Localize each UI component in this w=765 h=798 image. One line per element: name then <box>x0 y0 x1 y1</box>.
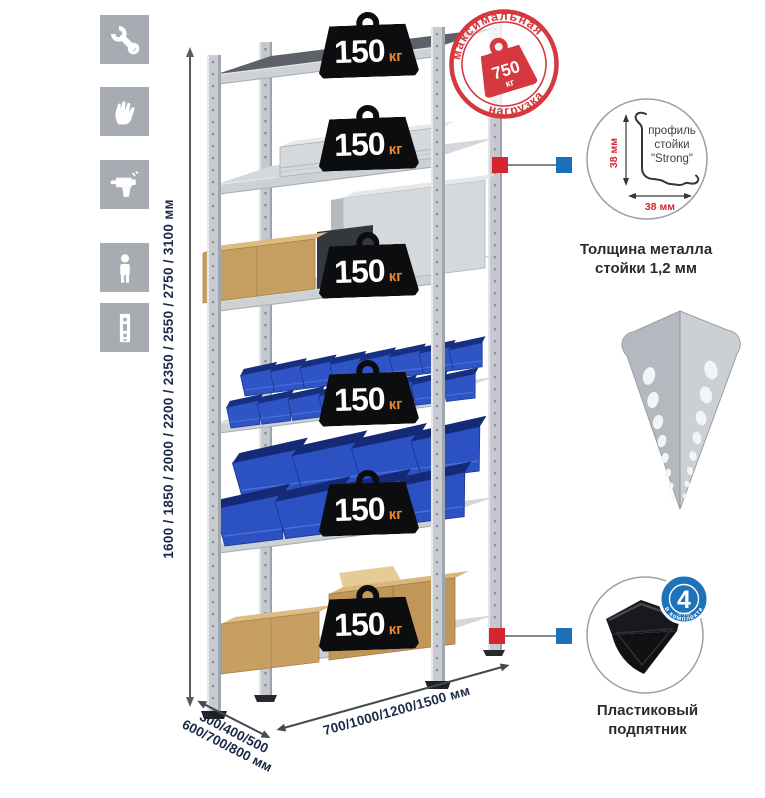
connector-red-square <box>489 628 505 644</box>
connector-blue-square <box>556 628 572 644</box>
profile-vertical-dim: 38 мм <box>608 138 620 168</box>
shelf-load-unit: кг <box>388 621 402 636</box>
weight-icon: 150 кг <box>317 23 419 78</box>
profile-caption: Толщина металла стойки 1,2 мм <box>560 240 732 278</box>
shelf-load-badge: 150 кг <box>317 103 419 171</box>
weight-icon: 150 кг <box>317 481 419 536</box>
wrench-icon <box>100 15 149 64</box>
gloves-icon <box>100 87 149 136</box>
foot-caption-line1: Пластиковый <box>570 701 725 720</box>
profile-text-line1: профиль <box>648 125 696 137</box>
connector-line <box>500 164 560 166</box>
rack-post-icon <box>100 303 149 352</box>
max-load-stamp: максимальная нагрузка 750 кг <box>446 6 562 122</box>
shelf-load-badge: 150 кг <box>317 230 419 298</box>
weight-icon: 150 кг <box>317 243 419 298</box>
shelf-load-unit: кг <box>388 268 402 283</box>
height-dimension-label: 1600 / 1850 / 2000 / 2200 / 2350 / 2550 … <box>161 59 179 699</box>
connector-line <box>498 635 560 637</box>
drill-icon <box>100 160 149 209</box>
profile-text-line3: "Strong" <box>651 153 693 165</box>
angle-post-image <box>597 302 763 524</box>
connector-red-square <box>492 157 508 173</box>
plastic-foot-detail: 4 штуки в комплекте <box>584 573 718 697</box>
shelf-load-badge: 150 кг <box>317 468 419 536</box>
post-profile-detail: 38 мм 38 мм профиль стойки "Strong" <box>584 96 710 222</box>
shelf-load-value: 150 <box>334 127 385 161</box>
weight-icon: 150 кг <box>317 596 419 651</box>
foot-caption-line2: подпятник <box>570 720 725 739</box>
person-icon <box>100 243 149 292</box>
foot-caption: Пластиковый подпятник <box>570 701 725 739</box>
shelf-load-badge: 150 кг <box>317 583 419 651</box>
shelf-load-unit: кг <box>388 506 402 521</box>
profile-text-line2: стойки <box>654 139 689 151</box>
shelf-load-badge: 150 кг <box>317 358 419 426</box>
shelf-load-value: 150 <box>334 492 385 526</box>
infographic-canvas: 1600 / 1850 / 2000 / 2200 / 2350 / 2550 … <box>0 0 765 765</box>
shelf-load-badge: 150 кг <box>317 10 419 78</box>
weight-icon: 150 кг <box>317 371 419 426</box>
cardboard-box <box>221 605 333 674</box>
shelf-load-unit: кг <box>388 141 402 156</box>
weight-icon: 150 кг <box>317 116 419 171</box>
connector-blue-square <box>556 157 572 173</box>
shelf-load-value: 150 <box>334 607 385 641</box>
shelf-load-value: 150 <box>334 254 385 288</box>
profile-horizontal-dim: 38 мм <box>645 201 675 213</box>
shelf-load-unit: кг <box>388 396 402 411</box>
included-count-badge: 4 штуки в комплекте <box>660 575 708 623</box>
shelf-load-value: 150 <box>334 34 385 68</box>
profile-caption-line1: Толщина металла <box>560 240 732 259</box>
shelf-load-unit: кг <box>388 48 402 63</box>
shelf-load-value: 150 <box>334 382 385 416</box>
height-dimension-line <box>189 56 191 698</box>
badge-count: 4 <box>677 586 691 614</box>
profile-caption-line2: стойки 1,2 мм <box>560 259 732 278</box>
